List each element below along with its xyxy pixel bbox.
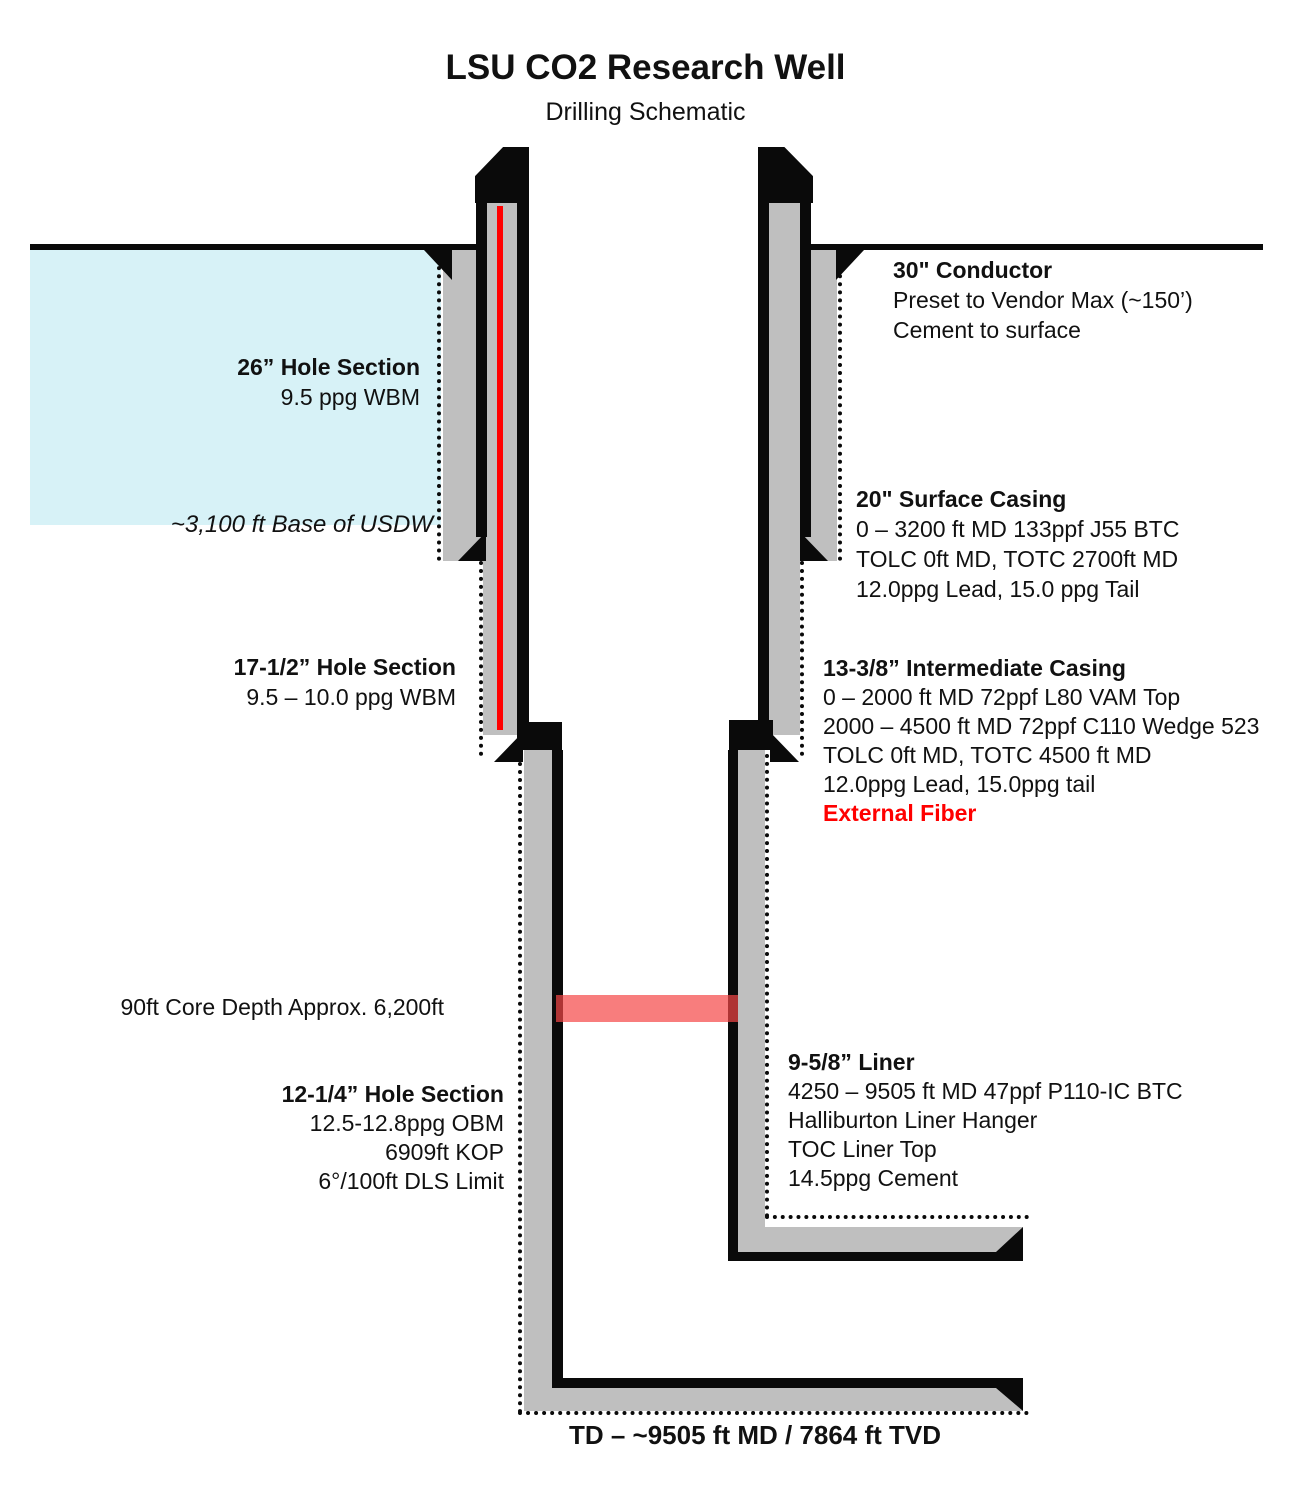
casing-wall-inner-left — [517, 203, 529, 724]
surface-casing-note: 20" Surface Casing 0 – 3200 ft MD 133ppf… — [856, 484, 1179, 604]
hole26-note-title: 26” Hole Section — [237, 352, 420, 382]
open-hole-wall-gray-left — [524, 750, 553, 1411]
open-hole-wall-left — [552, 750, 563, 1378]
wellhead-left — [475, 147, 529, 203]
casing-wall-inner-right — [758, 203, 769, 722]
hole12-note-title: 12-1/4” Hole Section — [282, 1080, 504, 1109]
td-note: TD – ~9505 ft MD / 7864 ft TVD — [480, 1420, 1030, 1451]
surface-casing-shoe-right — [770, 732, 799, 762]
liner-note-title: 9-5/8” Liner — [788, 1048, 1183, 1077]
td-leg-top-line — [552, 1378, 1023, 1388]
hole17-note-title: 17-1/2” Hole Section — [234, 652, 456, 682]
drilling-schematic: LSU CO2 Research Well Drilling Schematic — [0, 0, 1291, 1501]
cement-dotted-liner-right — [765, 754, 769, 1218]
hanger-marker-right — [836, 250, 864, 280]
cement-dotted-conductor-right — [838, 250, 842, 561]
ground-line-left — [30, 244, 484, 250]
surface-casing-note-title: 20" Surface Casing — [856, 484, 1179, 514]
liner-leg-gray — [738, 1227, 1023, 1252]
hole12-note: 12-1/4” Hole Section 12.5-12.8ppg OBM 69… — [282, 1080, 504, 1196]
liner-leg-end-cap — [996, 1227, 1023, 1252]
core-interval-band — [556, 995, 738, 1022]
conductor-wall-left — [476, 203, 487, 537]
page-subtitle: Drilling Schematic — [0, 98, 1291, 127]
liner-note: 9-5/8” Liner 4250 – 9505 ft MD 47ppf P11… — [788, 1048, 1183, 1193]
ground-line-right — [806, 244, 1263, 250]
conductor-shoe-left — [458, 532, 486, 561]
surface-casing-right — [769, 203, 800, 735]
td-leg-end-cap — [996, 1388, 1023, 1411]
core-note: 90ft Core Depth Approx. 6,200ft — [121, 992, 444, 1022]
cement-dotted-liner-top — [765, 1215, 1029, 1219]
conductor-shoe-right — [800, 532, 828, 561]
hole26-note: 26” Hole Section 9.5 ppg WBM — [237, 352, 420, 412]
liner-wall-gray-right — [738, 750, 765, 1227]
external-fiber-label: External Fiber — [823, 799, 1259, 828]
hole17-note: 17-1/2” Hole Section 9.5 – 10.0 ppg WBM — [234, 652, 456, 712]
cement-dotted-surface-left — [479, 561, 483, 756]
conductor-note-title: 30" Conductor — [893, 255, 1193, 285]
conductor-note: 30" Conductor Preset to Vendor Max (~150… — [893, 255, 1193, 345]
cement-dotted-lower-left — [518, 754, 522, 1414]
intermediate-casing-note: 13-3/8” Intermediate Casing 0 – 2000 ft … — [823, 654, 1259, 828]
intermediate-casing-note-title: 13-3/8” Intermediate Casing — [823, 654, 1259, 683]
wellhead-right — [758, 147, 813, 203]
cement-dotted-conductor-left — [437, 250, 441, 561]
cement-dotted-surface-right — [800, 561, 804, 756]
casing-step-block-right — [729, 720, 773, 750]
page-title: LSU CO2 Research Well — [0, 48, 1291, 88]
td-leg-gray — [524, 1388, 1023, 1411]
usdw-note: ~3,100 ft Base of USDW — [171, 510, 433, 540]
cement-dotted-td-bottom — [518, 1411, 1029, 1415]
liner-leg-bottom-line — [728, 1252, 1023, 1261]
fiber-line — [497, 206, 503, 730]
casing-step-block-left — [517, 722, 562, 750]
hanger-marker-left — [424, 250, 452, 280]
conductor-wall-right — [800, 203, 811, 537]
